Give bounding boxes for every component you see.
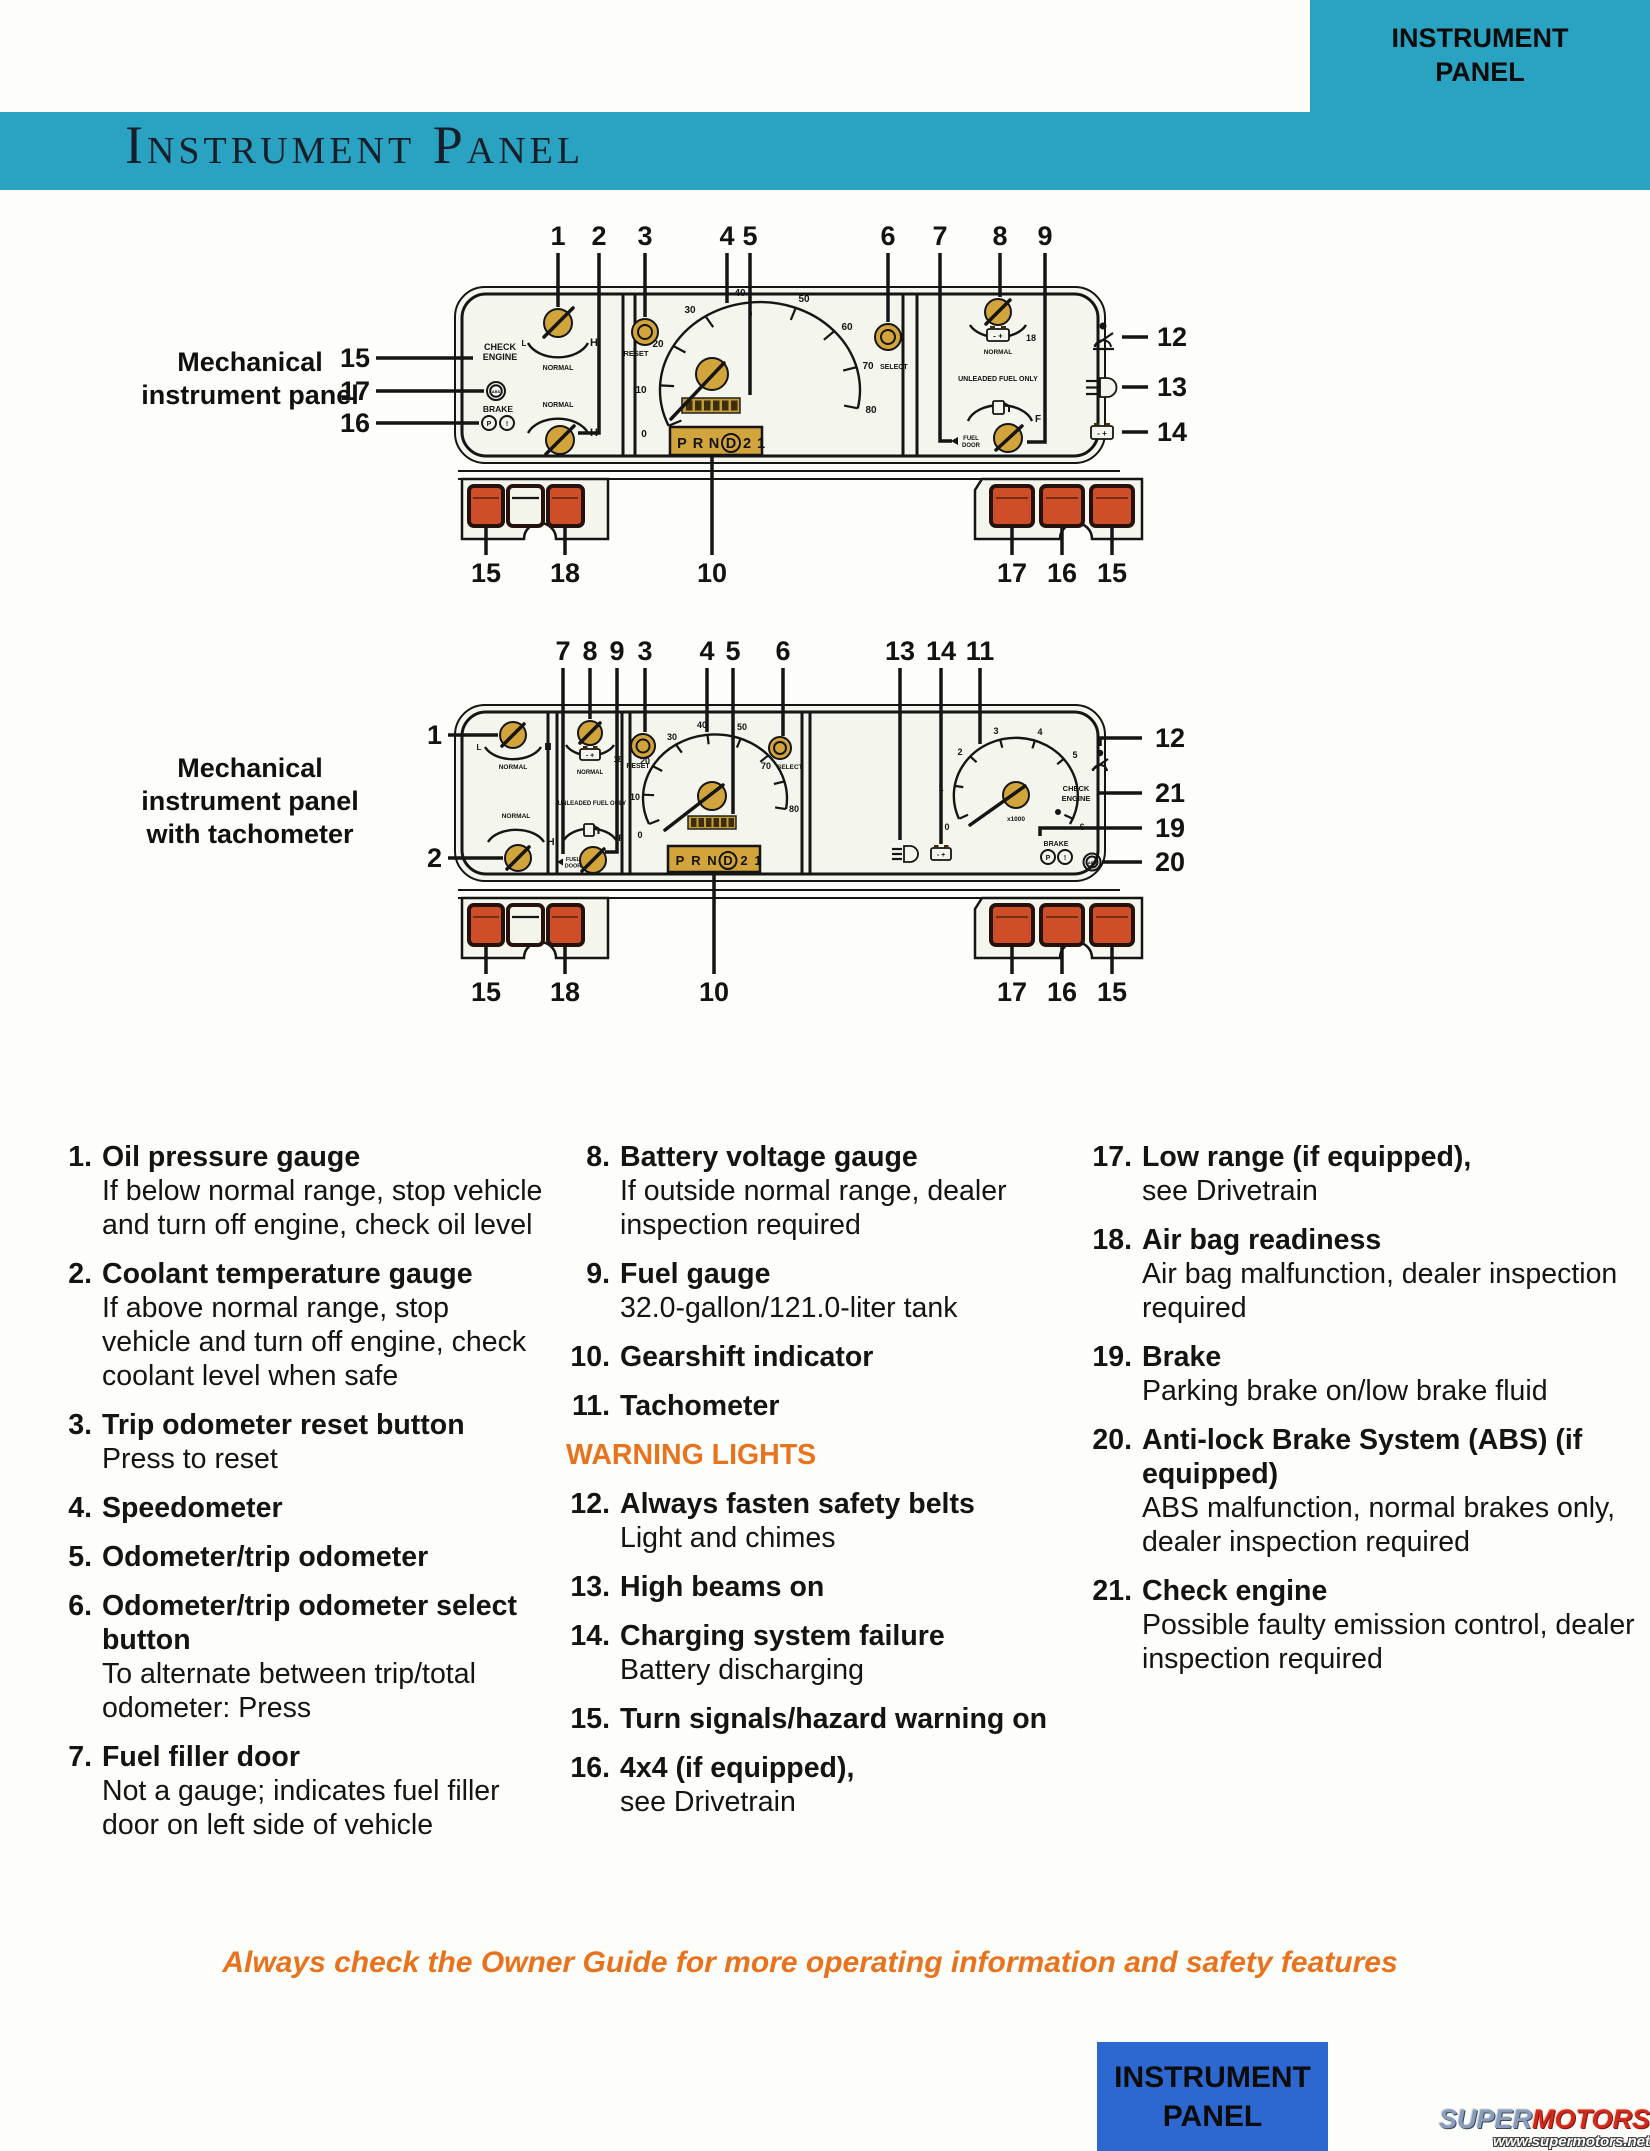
watermark-super: SUPER — [1439, 2104, 1532, 2134]
low-range-light — [991, 486, 1033, 526]
engine2: ENGINE — [1062, 794, 1091, 803]
callout2-15: 15 — [471, 977, 501, 1007]
diagram2: 7 8 9 3 4 5 6 13 14 11 1 2 L — [330, 640, 1230, 1025]
panel2-lower-pod — [458, 890, 1142, 974]
page-title: Instrument Panel — [125, 114, 584, 176]
legend-item-number: 8. — [556, 1140, 620, 1242]
coolant2-h: H — [547, 837, 554, 848]
oil2-normal: NORMAL — [499, 764, 528, 771]
turn-signal-light-right-2 — [1091, 905, 1133, 945]
turn-signal-light-left-2 — [469, 905, 503, 945]
tach-1: 1 — [938, 783, 943, 793]
callout-19: 19 — [1155, 813, 1185, 843]
legend-item-desc: To alternate between trip/total odometer… — [102, 1657, 543, 1725]
callout-10-bottom: 10 — [697, 558, 727, 588]
tach-3: 3 — [993, 726, 998, 736]
legend-column-1: 1.Oil pressure gaugeIf below normal rang… — [38, 1140, 543, 1857]
callout2-17: 17 — [997, 977, 1027, 1007]
legend-item-number: 19. — [1078, 1340, 1142, 1408]
charging-polarity: - + — [1097, 429, 1107, 438]
legend-item: 14.Charging system failureBattery discha… — [556, 1619, 1061, 1687]
section-banner: Instrument Panel — [0, 112, 1650, 190]
check-engine-2: CHECK ENGINE — [1062, 784, 1091, 803]
callout2-15b: 15 — [1097, 977, 1127, 1007]
abs2-text: ABS — [1088, 860, 1097, 865]
gear-2: 2 — [743, 436, 751, 452]
legend-item-title: Odometer/trip odometer — [102, 1540, 428, 1574]
check2: CHECK — [1063, 784, 1090, 793]
legend-item: 11.Tachometer — [556, 1389, 1061, 1423]
legend-item: 4.Speedometer — [38, 1491, 543, 1525]
gear2-n: N — [707, 853, 716, 868]
speedo-label-80: 80 — [865, 405, 877, 416]
watermark: SUPERMOTORS www.supermotors.net — [1400, 2106, 1650, 2149]
speedo-label-10: 10 — [635, 385, 647, 396]
gear2-d: D — [723, 853, 732, 868]
panel1-left-callouts: 15 17 16 — [340, 343, 484, 438]
callout2-10: 10 — [699, 977, 729, 1007]
brake-warning-excl: ! — [506, 421, 508, 428]
legend-item: 5.Odometer/trip odometer — [38, 1540, 543, 1574]
callout-16-bottom: 16 — [1047, 558, 1077, 588]
warning-light-2 — [548, 905, 583, 945]
callout-12: 12 — [1155, 723, 1185, 753]
oil-l: L — [522, 339, 527, 348]
legend-item-body: Fuel filler doorNot a gauge; indicates f… — [102, 1740, 543, 1842]
speedo-label-70: 70 — [862, 361, 874, 372]
legend-item-desc: If above normal range, stop vehicle and … — [102, 1291, 543, 1393]
legend-item-number: 1. — [38, 1140, 102, 1242]
legend-item-title: Coolant temperature gauge — [102, 1257, 543, 1291]
legend-item-body: Fuel gauge32.0-gallon/121.0-liter tank — [620, 1257, 957, 1325]
legend-item-title: Speedometer — [102, 1491, 283, 1525]
gear-d: D — [726, 436, 736, 452]
speedo-label-0: 0 — [641, 429, 647, 440]
gear-r: R — [693, 436, 704, 452]
legend-item-desc: see Drivetrain — [620, 1785, 854, 1819]
legend-item-title: Tachometer — [620, 1389, 779, 1423]
unleaded-fuel-label: UNLEADED FUEL ONLY — [958, 376, 1038, 383]
battery-18: 18 — [1026, 333, 1036, 343]
legend-item-desc: Battery discharging — [620, 1653, 945, 1687]
callout-17-left: 17 — [340, 376, 370, 406]
callout-6: 6 — [880, 221, 895, 251]
legend-item-title: Fuel filler door — [102, 1740, 543, 1774]
callout-8: 8 — [582, 636, 597, 666]
gear2-1: 1 — [754, 853, 761, 868]
panel2-bottom-callouts: 15 18 10 17 16 15 — [471, 977, 1127, 1007]
legend-item: 18.Air bag readinessAir bag malfunction,… — [1078, 1223, 1640, 1325]
callout-6: 6 — [775, 636, 790, 666]
legend-item: 21.Check enginePossible faulty emission … — [1078, 1574, 1640, 1676]
speedo2-10: 10 — [630, 792, 640, 802]
legend-item-desc: If outside normal range, dealer inspecti… — [620, 1174, 1061, 1242]
abs-text: ABS — [492, 389, 501, 394]
abs-indicator-2: ABS — [1084, 854, 1101, 871]
callout2-18: 18 — [550, 977, 580, 1007]
gear-n: N — [709, 436, 719, 452]
legend-item-desc: ABS malfunction, normal brakes only, dea… — [1142, 1491, 1640, 1559]
legend-item-number: 14. — [556, 1619, 620, 1687]
speedo-label-30: 30 — [684, 305, 696, 316]
callout-14: 14 — [926, 636, 956, 666]
turn-signal-light-left — [469, 486, 503, 526]
callout-15-left: 15 — [340, 343, 370, 373]
legend-item: 2.Coolant temperature gaugeIf above norm… — [38, 1257, 543, 1393]
gear-1: 1 — [757, 436, 765, 452]
legend-item-title: Anti-lock Brake System (ABS) (if equippe… — [1142, 1423, 1640, 1491]
fuel-door-label1: FUEL — [963, 436, 979, 442]
brake2-excl: ! — [1064, 855, 1066, 862]
legend-item-body: 4x4 (if equipped),see Drivetrain — [620, 1751, 854, 1819]
legend-item: 1.Oil pressure gaugeIf below normal rang… — [38, 1140, 543, 1242]
legend-item-number: 17. — [1078, 1140, 1142, 1208]
turn-signal-light-right — [1091, 486, 1133, 526]
check-engine-label2: ENGINE — [483, 352, 518, 362]
callout-1: 1 — [550, 221, 565, 251]
legend-item-body: Oil pressure gaugeIf below normal range,… — [102, 1140, 543, 1242]
corner-tab-line2: PANEL — [1435, 56, 1525, 90]
callout-2: 2 — [591, 221, 606, 251]
fuel-door2-label1: FUEL — [566, 857, 581, 863]
callout-3: 3 — [637, 636, 652, 666]
legend-item-title: Brake — [1142, 1340, 1548, 1374]
legend-item-body: BrakeParking brake on/low brake fluid — [1142, 1340, 1548, 1408]
coolant-h: H — [590, 427, 598, 439]
bottom-tab: INSTRUMENT PANEL — [1097, 2042, 1328, 2151]
panel1-lower-pod — [458, 471, 1142, 555]
tach-4: 4 — [1037, 727, 1042, 737]
panel1-bottom-callouts: 15 18 10 17 16 15 — [471, 558, 1127, 588]
gear2-p: P — [676, 853, 685, 868]
legend-item-desc: Air bag malfunction, dealer inspection r… — [1142, 1257, 1640, 1325]
legend-item-number: 12. — [556, 1487, 620, 1555]
watermark-logo: SUPERMOTORS — [1400, 2106, 1650, 2133]
callout-5: 5 — [742, 221, 757, 251]
legend-item: 9.Fuel gauge32.0-gallon/121.0-liter tank — [556, 1257, 1061, 1325]
callout-14-right: 14 — [1157, 417, 1187, 447]
legend-item-number: 7. — [38, 1740, 102, 1842]
legend-item-title: Odometer/trip odometer select button — [102, 1589, 543, 1657]
gear-p: P — [677, 436, 687, 452]
corner-tab: INSTRUMENT PANEL — [1310, 0, 1650, 112]
brake-label: BRAKE — [483, 404, 514, 414]
legend-column-2: 8.Battery voltage gaugeIf outside normal… — [556, 1140, 1061, 1834]
legend-item: 17.Low range (if equipped),see Drivetrai… — [1078, 1140, 1640, 1208]
unleaded-fuel-label-2: UNLEADED FUEL ONLY — [558, 801, 626, 807]
legend-item-number: 20. — [1078, 1423, 1142, 1559]
battery-normal: NORMAL — [984, 349, 1013, 356]
legend-item-title: Trip odometer reset button — [102, 1408, 465, 1442]
legend-item-title: Fuel gauge — [620, 1257, 957, 1291]
legend-item-title: Low range (if equipped), — [1142, 1140, 1471, 1174]
fuel2-f: F — [618, 833, 624, 843]
fuel-door2-label2: DOOR — [565, 864, 582, 870]
callout-15-bottom: 15 — [471, 558, 501, 588]
speedo-label-60: 60 — [841, 322, 853, 333]
manual-page: INSTRUMENT PANEL Instrument Panel Mechan… — [0, 0, 1650, 2151]
legend-item-body: Anti-lock Brake System (ABS) (if equippe… — [1142, 1423, 1640, 1559]
callout-18-bottom: 18 — [550, 558, 580, 588]
battery2-normal: NORMAL — [577, 770, 604, 776]
callout-16-left: 16 — [340, 408, 370, 438]
legend-item: 10.Gearshift indicator — [556, 1340, 1061, 1374]
coolant2-normal: NORMAL — [502, 813, 531, 820]
footer-note: Always check the Owner Guide for more op… — [0, 1946, 1620, 1980]
legend-item-title: Turn signals/hazard warning on — [620, 1702, 1047, 1736]
charging-battery-icon: - + — [1091, 423, 1113, 439]
legend-item-title: High beams on — [620, 1570, 824, 1604]
legend-item-title: 4x4 (if equipped), — [620, 1751, 854, 1785]
callout-3: 3 — [637, 221, 652, 251]
legend-item-number: 16. — [556, 1751, 620, 1819]
legend-item-body: Turn signals/hazard warning on — [620, 1702, 1047, 1736]
battery2-18: 18 — [614, 755, 623, 764]
bottom-tab-line1: INSTRUMENT — [1114, 2058, 1311, 2097]
airbag-light — [508, 486, 543, 526]
legend-item: 20.Anti-lock Brake System (ABS) (if equi… — [1078, 1423, 1640, 1559]
callout-8: 8 — [992, 221, 1007, 251]
battery2-polarity: - + — [586, 753, 594, 760]
legend-item-body: Odometer/trip odometer select buttonTo a… — [102, 1589, 543, 1725]
battery-polarity: - + — [993, 332, 1003, 341]
legend-item-desc: Possible faulty emission control, dealer… — [1142, 1608, 1640, 1676]
callout-12-right: 12 — [1157, 322, 1187, 352]
legend-item-number: 13. — [556, 1570, 620, 1604]
speedo2-30: 30 — [667, 732, 677, 742]
callout-2: 2 — [427, 843, 442, 873]
legend-item-body: Odometer/trip odometer — [102, 1540, 428, 1574]
callout-7: 7 — [555, 636, 570, 666]
fuel-f: F — [1035, 414, 1041, 425]
legend-column-3: 17.Low range (if equipped),see Drivetrai… — [1078, 1140, 1640, 1691]
oil-normal: NORMAL — [543, 365, 574, 372]
bottom-tab-line2: PANEL — [1163, 2097, 1262, 2136]
callout-15b-bottom: 15 — [1097, 558, 1127, 588]
callout-11: 11 — [966, 636, 995, 666]
callout-4: 4 — [699, 636, 714, 666]
gearshift-indicator: P R N D 2 1 — [670, 427, 765, 455]
legend-item: 8.Battery voltage gaugeIf outside normal… — [556, 1140, 1061, 1242]
tach-x1000: x1000 — [1007, 816, 1025, 823]
legend-item-body: Speedometer — [102, 1491, 283, 1525]
reset-label: RESET — [623, 349, 648, 358]
gear2-2: 2 — [740, 853, 747, 868]
select2-label: SELECT — [777, 764, 803, 771]
legend-item-number: 4. — [38, 1491, 102, 1525]
callout-1: 1 — [427, 720, 442, 750]
legend-item: 13.High beams on — [556, 1570, 1061, 1604]
callout-17-bottom: 17 — [997, 558, 1027, 588]
corner-tab-line1: INSTRUMENT — [1392, 22, 1569, 56]
legend-item-body: Air bag readinessAir bag malfunction, de… — [1142, 1223, 1640, 1325]
callout-5: 5 — [725, 636, 740, 666]
coolant-normal: NORMAL — [543, 402, 574, 409]
legend-item-title: Always fasten safety belts — [620, 1487, 975, 1521]
4x4-light-2 — [1041, 905, 1083, 945]
parking-brake-p: P — [487, 421, 492, 428]
tach-5: 5 — [1072, 750, 1077, 760]
legend-item-desc: Parking brake on/low brake fluid — [1142, 1374, 1548, 1408]
legend-item: 19.BrakeParking brake on/low brake fluid — [1078, 1340, 1640, 1408]
legend-item-desc: 32.0-gallon/121.0-liter tank — [620, 1291, 957, 1325]
legend-item-desc: Press to reset — [102, 1442, 465, 1476]
legend-item-body: Gearshift indicator — [620, 1340, 873, 1374]
legend-item-title: Gearshift indicator — [620, 1340, 873, 1374]
speedo2-70: 70 — [761, 761, 771, 771]
brake2-label: BRAKE — [1044, 841, 1069, 848]
legend-item: 7.Fuel filler doorNot a gauge; indicates… — [38, 1740, 543, 1842]
speedo2-20: 20 — [640, 756, 650, 766]
speedo-label-20: 20 — [652, 339, 664, 350]
legend-item-body: Check enginePossible faulty emission con… — [1142, 1574, 1640, 1676]
legend-item: 12.Always fasten safety beltsLight and c… — [556, 1487, 1061, 1555]
legend-item-body: Battery voltage gaugeIf outside normal r… — [620, 1140, 1061, 1242]
legend-item-number: 21. — [1078, 1574, 1142, 1676]
legend-item-number: 15. — [556, 1702, 620, 1736]
legend-item: 3.Trip odometer reset buttonPress to res… — [38, 1408, 543, 1476]
callout-9: 9 — [609, 636, 624, 666]
legend-item-number: 10. — [556, 1340, 620, 1374]
legend-item-title: Battery voltage gauge — [620, 1140, 1061, 1174]
legend-item-number: 9. — [556, 1257, 620, 1325]
callout-4: 4 — [719, 221, 734, 251]
callout-21: 21 — [1155, 778, 1185, 808]
legend-item-body: Low range (if equipped),see Drivetrain — [1142, 1140, 1471, 1208]
charging-battery-icon-2: - + — [931, 845, 951, 860]
legend-item-body: Tachometer — [620, 1389, 779, 1423]
legend-item-number: 3. — [38, 1408, 102, 1476]
4x4-light — [1041, 486, 1083, 526]
legend-item: 16.4x4 (if equipped),see Drivetrain — [556, 1751, 1061, 1819]
oil-h: H — [590, 337, 598, 349]
low-range-light-2 — [991, 905, 1033, 945]
legend-item: 15.Turn signals/hazard warning on — [556, 1702, 1061, 1736]
diagram1: 1 2 3 4 5 6 7 8 9 CHECK ENGINE ABS BRAKE… — [330, 195, 1230, 625]
watermark-motors: MOTORS — [1532, 2104, 1650, 2134]
legend-item-title: Charging system failure — [620, 1619, 945, 1653]
warning-lights-header: WARNING LIGHTS — [566, 1438, 1061, 1472]
fuel-door-label2: DOOR — [962, 443, 981, 449]
speedo-label-50: 50 — [798, 294, 810, 305]
legend-item-number: 6. — [38, 1589, 102, 1725]
legend-item-number: 11. — [556, 1389, 620, 1423]
speedo2-0: 0 — [637, 830, 642, 840]
check-engine-label: CHECK — [484, 342, 517, 352]
speedo-label-40: 40 — [734, 288, 746, 299]
callout-7: 7 — [932, 221, 947, 251]
airbag-light-2 — [508, 905, 543, 945]
gear2-r: R — [691, 853, 701, 868]
legend-item-desc: If below normal range, stop vehicle and … — [102, 1174, 543, 1242]
legend-item-number: 5. — [38, 1540, 102, 1574]
high-beam-icon-2 — [892, 846, 918, 862]
warning-light — [548, 486, 583, 526]
watermark-url: www.supermotors.net — [1400, 2134, 1650, 2149]
legend-item-title: Oil pressure gauge — [102, 1140, 543, 1174]
legend-item-title: Air bag readiness — [1142, 1223, 1640, 1257]
high-beam-icon — [1086, 378, 1117, 397]
callout-13: 13 — [885, 636, 915, 666]
legend-item-body: Charging system failureBattery dischargi… — [620, 1619, 945, 1687]
tach-redline-dot — [1055, 809, 1061, 815]
tach-2: 2 — [957, 747, 962, 757]
oil2-h: H — [544, 742, 551, 753]
legend-item-number: 18. — [1078, 1223, 1142, 1325]
legend-item-body: Trip odometer reset buttonPress to reset — [102, 1408, 465, 1476]
gearshift-indicator-2: P R N D 2 1 — [668, 846, 762, 872]
legend-item-title: Check engine — [1142, 1574, 1640, 1608]
legend-item-body: High beams on — [620, 1570, 824, 1604]
tach-0: 0 — [944, 822, 949, 832]
speedo2-80: 80 — [789, 804, 799, 814]
legend-item-body: Always fasten safety beltsLight and chim… — [620, 1487, 975, 1555]
brake2-p: P — [1046, 855, 1051, 862]
legend-item: 6.Odometer/trip odometer select buttonTo… — [38, 1589, 543, 1725]
speedo2-40: 40 — [697, 720, 707, 730]
callout-20: 20 — [1155, 847, 1185, 877]
legend-item-desc: Light and chimes — [620, 1521, 975, 1555]
callout2-16: 16 — [1047, 977, 1077, 1007]
speedo2-50: 50 — [737, 722, 747, 732]
select-label: SELECT — [880, 364, 908, 371]
oil2-l: L — [477, 743, 482, 752]
legend-item-desc: Not a gauge; indicates fuel filler door … — [102, 1774, 543, 1842]
legend-item-body: Coolant temperature gaugeIf above normal… — [102, 1257, 543, 1393]
legend-item-number: 2. — [38, 1257, 102, 1393]
legend-item-desc: see Drivetrain — [1142, 1174, 1471, 1208]
callout-9: 9 — [1037, 221, 1052, 251]
charging2-polarity: - + — [937, 852, 945, 859]
callout-13-right: 13 — [1157, 372, 1187, 402]
